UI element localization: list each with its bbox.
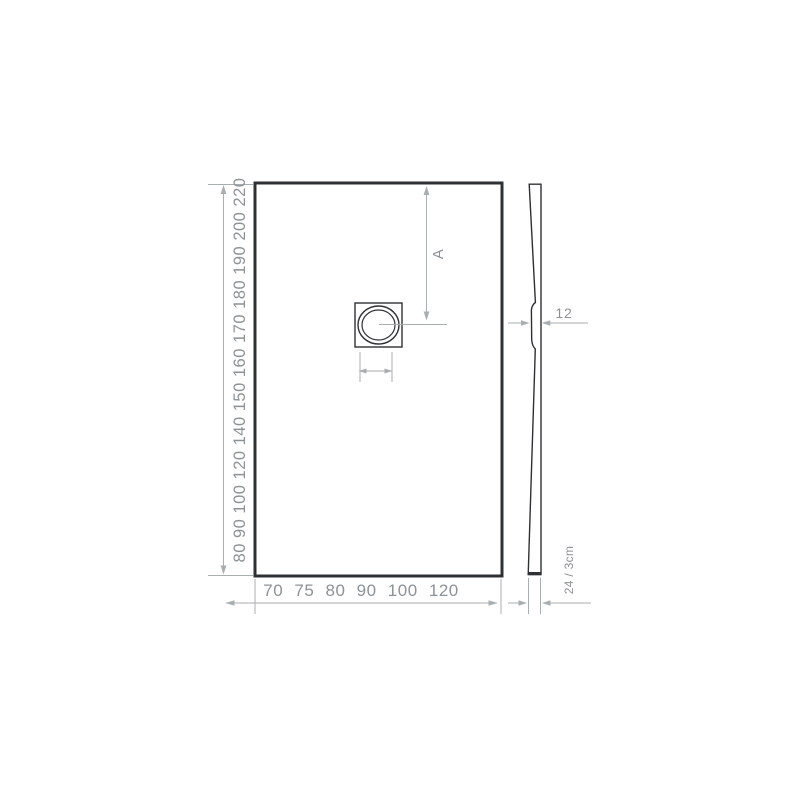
width-arrow-left-icon <box>226 600 235 606</box>
side-view <box>528 184 541 574</box>
thickness-arrow-left-icon <box>521 320 530 325</box>
length-arrow-up-icon <box>221 185 227 194</box>
length-dimension: 80 90 100 120 140 150 160 170 180 190 20… <box>208 178 253 576</box>
shower-tray-technical-drawing: 80 90 100 120 140 150 160 170 180 190 20… <box>0 0 800 800</box>
width-size-labels: 70 75 80 90 100 120 <box>263 581 458 600</box>
plan-view <box>255 183 502 576</box>
length-arrow-down-icon <box>221 566 227 575</box>
thickness-arrow-right-icon <box>542 320 551 325</box>
edge-height-arrow-left-icon <box>519 600 528 605</box>
drawing-canvas: 80 90 100 120 140 150 160 170 180 190 20… <box>0 0 800 800</box>
width-arrow-right-icon <box>489 600 498 606</box>
edge-height-label: 24 / 3cm <box>562 546 576 594</box>
side-profile-outline <box>528 184 541 574</box>
thickness-label: 12 <box>555 305 572 321</box>
thickness-dimension: 12 <box>508 305 588 326</box>
width-dimension: 70 75 80 90 100 120 <box>226 579 502 614</box>
tray-outline <box>255 183 502 576</box>
drain-offset-label: A <box>430 249 447 260</box>
edge-height-dimension: 24 / 3cm <box>508 546 591 614</box>
edge-height-arrow-right-icon <box>542 600 551 605</box>
length-size-labels: 80 90 100 120 140 150 160 170 180 190 20… <box>231 178 249 563</box>
